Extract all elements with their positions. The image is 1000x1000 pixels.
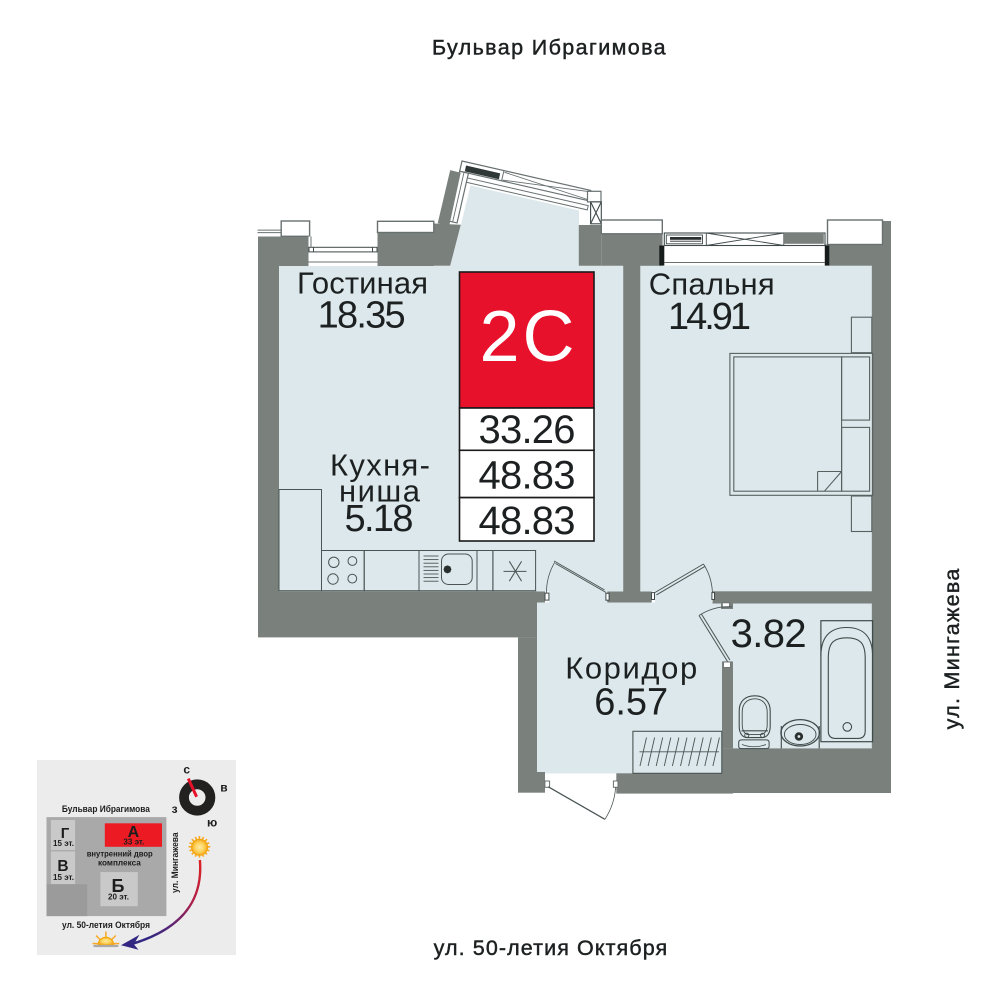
svg-text:48.83: 48.83	[479, 454, 576, 498]
svg-text:2C: 2C	[480, 297, 575, 377]
svg-text:комплекса: комплекса	[98, 858, 141, 868]
svg-text:с: с	[183, 762, 190, 776]
svg-text:15 эт.: 15 эт.	[53, 873, 74, 882]
svg-text:33 эт.: 33 эт.	[123, 838, 144, 847]
svg-text:18.35: 18.35	[318, 295, 406, 337]
svg-text:20 эт.: 20 эт.	[108, 893, 129, 902]
svg-text:в: в	[220, 781, 227, 795]
svg-text:з: з	[172, 802, 178, 816]
svg-text:33.26: 33.26	[479, 408, 576, 452]
svg-text:3.82: 3.82	[731, 612, 807, 656]
svg-text:ул. Мингажева: ул. Мингажева	[170, 832, 180, 893]
svg-text:Бульвар Ибрагимова: Бульвар Ибрагимова	[62, 804, 150, 814]
svg-text:14.91: 14.91	[668, 296, 751, 338]
svg-text:5.18: 5.18	[345, 498, 414, 540]
svg-text:ул. Мингажева: ул. Мингажева	[940, 569, 964, 730]
svg-text:48.83: 48.83	[479, 499, 576, 543]
svg-text:Коридор: Коридор	[565, 650, 697, 685]
svg-text:6.57: 6.57	[594, 682, 668, 724]
svg-text:ю: ю	[207, 815, 217, 829]
svg-text:Бульвар Ибрагимова: Бульвар Ибрагимова	[432, 36, 666, 60]
svg-text:15 эт.: 15 эт.	[53, 839, 74, 848]
svg-text:ул. 50-летия Октября: ул. 50-летия Октября	[434, 936, 668, 960]
svg-text:ул. 50-летия Октября: ул. 50-летия Октября	[62, 920, 150, 930]
